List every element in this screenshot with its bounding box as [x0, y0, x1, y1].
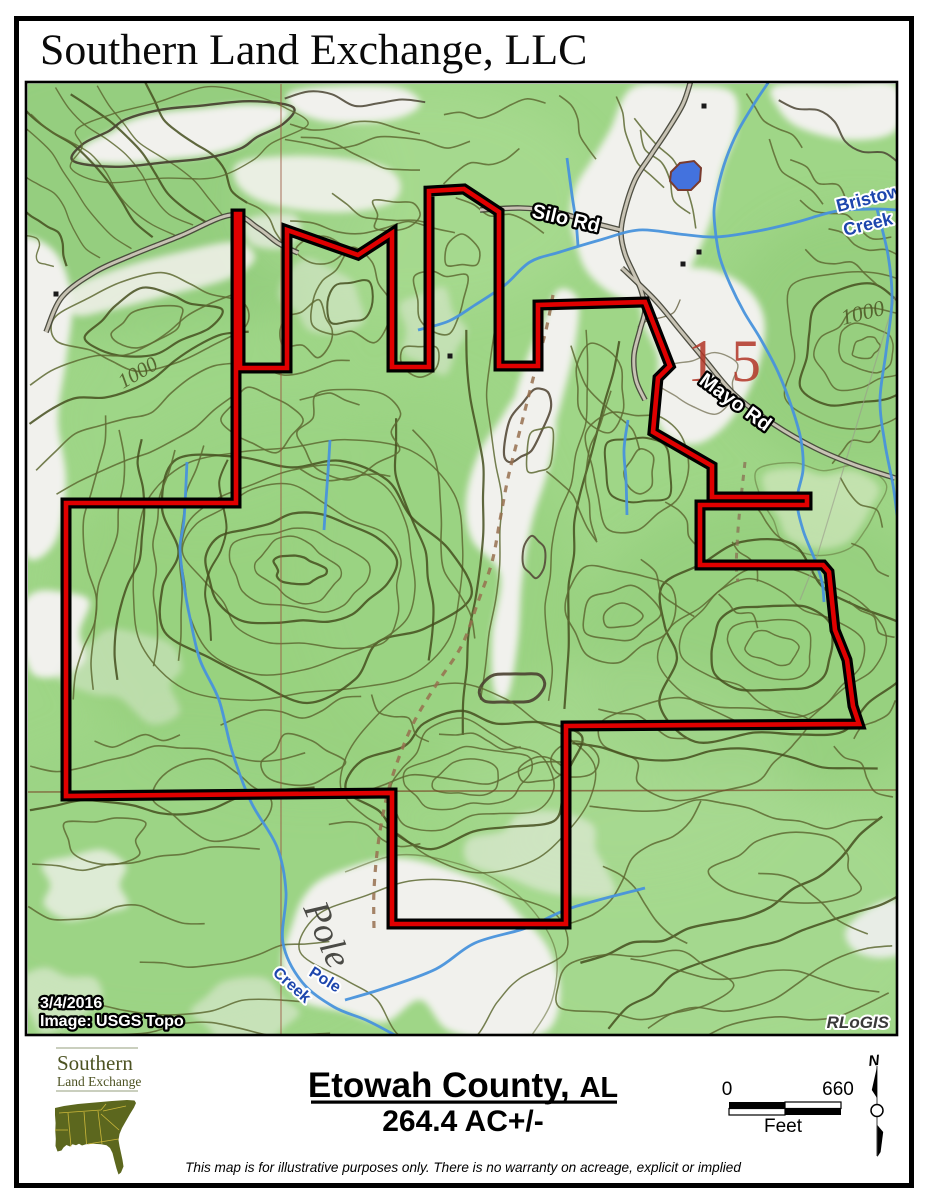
svg-text:264.4 AC+/-: 264.4 AC+/-: [382, 1105, 543, 1138]
svg-text:Southern: Southern: [57, 1051, 133, 1075]
svg-text:Land Exchange: Land Exchange: [57, 1074, 141, 1089]
svg-text:RLoGIS: RLoGIS: [827, 1013, 890, 1032]
svg-text:Southern Land Exchange, LLC: Southern Land Exchange, LLC: [40, 26, 587, 74]
svg-text:Image: USGS Topo: Image: USGS Topo: [40, 1013, 184, 1030]
svg-text:This map is for illustrative p: This map is for illustrative purposes on…: [185, 1160, 741, 1175]
svg-text:Feet: Feet: [764, 1116, 803, 1137]
svg-text:Etowah County, AL: Etowah County, AL: [308, 1066, 618, 1105]
svg-text:3/4/2016: 3/4/2016: [40, 995, 102, 1012]
svg-text:660: 660: [822, 1079, 854, 1100]
svg-text:0: 0: [722, 1079, 733, 1100]
